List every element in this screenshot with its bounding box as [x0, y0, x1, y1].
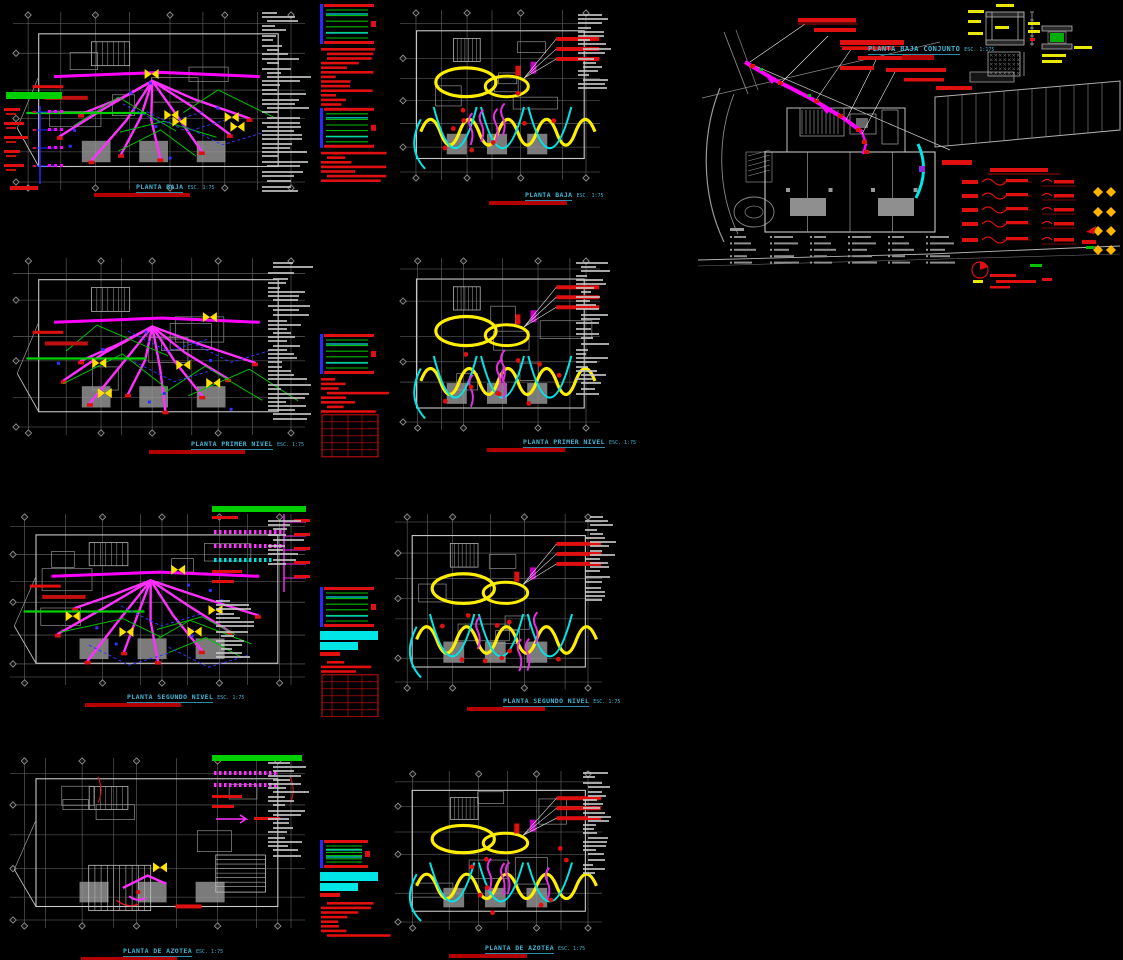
title-underline-bar	[487, 448, 565, 452]
note-text-line	[273, 791, 309, 793]
note-text-line	[576, 361, 597, 363]
annotation-stack-row3	[318, 585, 406, 721]
plan-title: PLANTA SEGUNDO NIVEL	[127, 693, 213, 703]
note-text-line	[267, 49, 279, 51]
plan-title: PLANTA DE AZOTEA	[123, 947, 192, 957]
note-text-line	[268, 324, 301, 326]
note-text-line	[273, 262, 293, 264]
note-text-line	[216, 608, 251, 610]
note-text-line	[268, 845, 288, 847]
note-text-line	[583, 832, 597, 834]
note-text-line	[267, 72, 281, 74]
note-text-line	[268, 545, 285, 547]
note-text-line	[578, 52, 605, 54]
note-text-line	[583, 807, 600, 809]
note-text-line	[578, 87, 607, 89]
note-text-line	[583, 849, 596, 851]
plan-scale: ESC. 1:75	[576, 193, 603, 199]
note-text-line	[583, 872, 595, 874]
note-text-line	[268, 370, 291, 372]
note-text-line	[576, 393, 599, 395]
note-text-line	[267, 62, 279, 64]
note-text-line	[576, 366, 588, 368]
note-text-line	[585, 591, 605, 593]
plan-title: PLANTA PRIMER NIVEL	[523, 438, 605, 448]
plan-scale: ESC. 1:75	[187, 185, 214, 191]
note-text-line	[576, 296, 600, 298]
plan-title: PLANTA SEGUNDO NIVEL	[503, 697, 589, 707]
note-text-line	[268, 353, 294, 355]
note-text-line	[581, 374, 606, 376]
note-text-line	[268, 800, 294, 802]
plan-title: PLANTA BAJA	[136, 183, 183, 193]
note-text-line	[216, 640, 244, 642]
plan-scale: ESC. 1:75	[558, 946, 585, 952]
note-text-line	[578, 18, 608, 20]
note-text-line	[576, 333, 599, 335]
title-underline-bar	[85, 703, 181, 707]
note-text-line	[590, 550, 602, 552]
note-text-line	[262, 25, 275, 27]
note-text-line	[583, 864, 593, 866]
note-text-line	[268, 349, 287, 351]
note-text-line	[585, 520, 608, 522]
plan-title-block: PLANTA DE AZOTEAESC. 1:75	[485, 937, 585, 958]
note-text-line	[262, 80, 300, 82]
note-text-line	[216, 604, 249, 606]
note-text-line	[578, 74, 589, 76]
note-text-line	[268, 837, 285, 839]
note-text-line	[576, 283, 606, 285]
note-text-line	[578, 22, 602, 24]
note-text-line	[268, 393, 309, 395]
note-text-line	[273, 559, 296, 561]
note-text-line	[216, 600, 230, 602]
note-text-line	[268, 563, 286, 565]
note-text-line	[273, 314, 309, 316]
note-text-line	[583, 812, 605, 814]
note-text-line	[268, 775, 301, 777]
plan-title: PLANTA DE AZOTEA	[485, 944, 554, 954]
floor-plan-azotea-right: PLANTA DE AZOTEAESC. 1:75	[390, 765, 612, 960]
note-text-line	[581, 314, 608, 316]
note-text-line	[268, 401, 286, 403]
note-text-line	[268, 384, 311, 386]
note-text-line	[262, 147, 290, 149]
note-text-line	[581, 337, 593, 339]
note-text-line	[262, 12, 277, 14]
plan-scale: ESC. 1:75	[593, 699, 620, 705]
note-text-line	[268, 762, 290, 764]
note-text-line	[588, 837, 608, 839]
note-text-line	[273, 770, 294, 772]
note-text-line	[581, 291, 591, 293]
note-text-line	[262, 134, 302, 136]
note-text-line	[262, 16, 295, 18]
note-text-line	[273, 332, 291, 334]
note-text-line	[590, 545, 609, 547]
note-text-line	[576, 328, 591, 330]
note-text-line	[576, 353, 586, 355]
note-text-line	[273, 418, 307, 420]
note-text-line	[273, 278, 288, 280]
note-text-line	[262, 143, 292, 145]
note-text-line	[268, 357, 297, 359]
note-text-line	[268, 534, 286, 536]
note-text-line	[268, 336, 295, 338]
note-text-line	[262, 89, 277, 91]
plan-title-block: PLANTA BAJAESC. 1:75	[525, 184, 604, 205]
note-text-line	[273, 539, 304, 541]
plan-title-block: PLANTA DE AZOTEAESC. 1:75	[123, 940, 223, 960]
plan-scale: ESC. 1:75	[217, 695, 244, 701]
note-text-line	[273, 855, 301, 857]
note-text-line	[268, 553, 298, 555]
note-text-line	[216, 613, 234, 615]
note-text-line	[583, 868, 605, 870]
note-text-line	[221, 644, 242, 646]
note-text-line	[268, 524, 290, 526]
title-underline-bar	[149, 450, 245, 454]
note-text-line	[590, 541, 616, 543]
title-underline-bar	[467, 707, 545, 711]
note-text-line	[262, 103, 295, 105]
note-text-line	[262, 39, 273, 41]
title-underline-bar	[489, 201, 567, 205]
plan-title-block: PLANTA SEGUNDO NIVELESC. 1:75	[503, 690, 620, 711]
note-text-line	[585, 558, 600, 560]
note-text-line	[267, 126, 301, 128]
note-text-line	[268, 520, 301, 522]
note-text-line	[273, 814, 301, 816]
note-text-line	[588, 853, 604, 855]
note-text-line	[267, 76, 311, 78]
note-text-line	[262, 122, 300, 124]
note-text-line	[268, 405, 306, 407]
plan-title: PLANTA PRIMER NIVEL	[191, 440, 273, 450]
note-text-line	[268, 366, 282, 368]
note-text-line	[588, 795, 606, 797]
notes-column	[262, 12, 310, 194]
note-text-line	[578, 39, 590, 41]
note-text-line	[585, 587, 601, 589]
note-text-line	[583, 66, 602, 68]
note-text-line	[262, 171, 303, 173]
note-text-line	[578, 14, 602, 16]
note-text-line	[583, 845, 606, 847]
note-text-line	[585, 537, 605, 539]
note-text-line	[267, 20, 298, 22]
note-text-line	[268, 295, 299, 297]
note-text-line	[262, 93, 306, 95]
note-text-line	[583, 841, 607, 843]
note-text-line	[262, 99, 299, 101]
note-text-line	[273, 299, 298, 301]
note-text-line	[262, 138, 302, 140]
note-text-line	[576, 349, 588, 351]
notes-column	[578, 14, 610, 91]
note-text-line	[268, 272, 294, 274]
site-title-block: PLANTA BAJA CONJUNTOESC. 1:175	[868, 38, 994, 60]
note-text-line	[578, 31, 604, 33]
note-text-line	[583, 799, 597, 801]
note-text-line	[273, 827, 293, 829]
note-text-line	[262, 45, 282, 47]
note-text-line	[267, 180, 291, 182]
note-text-line	[262, 155, 278, 157]
note-text-line	[576, 262, 608, 264]
site-scale: ESC. 1:175	[964, 47, 994, 53]
annotation-stack-row4	[318, 838, 400, 956]
note-text-line	[590, 516, 603, 518]
note-text-line	[578, 58, 594, 60]
note-text-line	[268, 374, 294, 376]
note-text-line	[576, 378, 593, 380]
note-text-line	[216, 625, 254, 627]
note-text-line	[267, 107, 309, 109]
note-text-line	[262, 35, 276, 37]
note-text-line	[273, 413, 311, 415]
note-text-line	[583, 79, 608, 81]
notes-column	[583, 772, 611, 876]
note-text-line	[578, 27, 591, 29]
note-text-line	[221, 648, 232, 650]
note-text-line	[576, 287, 594, 289]
note-text-line	[268, 361, 282, 363]
note-text-line	[583, 48, 611, 50]
note-text-line	[576, 304, 596, 306]
plan-scale: ESC. 1:75	[609, 440, 636, 446]
title-underline-bar	[94, 193, 190, 197]
notes-column	[268, 520, 304, 567]
note-text-line	[262, 186, 291, 188]
note-text-line	[576, 279, 603, 281]
notes-column	[268, 762, 308, 860]
note-text-line	[268, 328, 287, 330]
note-text-line	[583, 824, 596, 826]
note-text-line	[581, 388, 595, 390]
note-text-line	[583, 828, 594, 830]
plan-drawing	[390, 508, 612, 720]
note-text-line	[576, 322, 599, 324]
note-text-line	[588, 820, 609, 822]
plan-title-block: PLANTA PRIMER NIVELESC. 1:75	[523, 431, 636, 452]
note-text-line	[216, 617, 240, 619]
note-text-line	[268, 841, 302, 843]
note-text-line	[588, 816, 611, 818]
note-text-line	[262, 84, 280, 86]
note-text-line	[268, 378, 307, 380]
note-text-line	[576, 308, 599, 310]
note-text-line	[268, 305, 310, 307]
note-text-line	[578, 43, 606, 45]
note-text-line	[585, 570, 600, 572]
cad-sheet: PLANTA BAJAESC. 1:75 PLANTA BAJAESC. 1:7…	[0, 0, 1123, 960]
note-text-line	[583, 62, 596, 64]
note-text-line	[268, 291, 305, 293]
notes-column	[216, 600, 258, 660]
plan-drawing	[390, 765, 612, 960]
note-text-line	[267, 165, 300, 167]
note-text-line	[576, 357, 608, 359]
note-text-line	[590, 533, 603, 535]
note-text-line	[262, 58, 299, 60]
note-text-line	[581, 382, 601, 384]
note-text-line	[590, 524, 613, 526]
note-text-line	[216, 656, 250, 658]
note-text-line	[273, 849, 298, 851]
note-text-line	[581, 266, 596, 268]
annotation-stack-row2	[318, 332, 398, 470]
note-text-line	[578, 83, 605, 85]
annotation-stack-row1	[318, 2, 398, 218]
note-text-line	[585, 576, 610, 578]
note-text-line	[262, 151, 307, 153]
note-text-line	[268, 818, 289, 820]
note-text-line	[273, 528, 287, 530]
note-text-line	[268, 282, 286, 284]
note-text-line	[585, 599, 602, 601]
note-text-line	[268, 549, 283, 551]
site-plan-conjunto: PLANTA BAJA CONJUNTOESC. 1:175	[690, 2, 1123, 292]
note-text-line	[262, 53, 288, 55]
symbol-legend-riser	[4, 92, 68, 198]
note-text-line	[581, 270, 610, 272]
note-text-line	[588, 859, 605, 861]
note-text-line	[268, 831, 287, 833]
note-text-line	[583, 782, 602, 784]
note-text-line	[273, 266, 313, 268]
note-text-line	[583, 776, 595, 778]
note-text-line	[268, 409, 295, 411]
floor-plan-segundo-nivel-outlets: PLANTA SEGUNDO NIVELESC. 1:75	[390, 508, 612, 720]
note-text-line	[588, 786, 610, 788]
note-text-line	[273, 309, 299, 311]
notes-column	[585, 516, 613, 603]
note-text-line	[267, 117, 300, 119]
note-text-line	[216, 652, 242, 654]
note-text-line	[268, 783, 301, 785]
note-text-line	[273, 766, 306, 768]
notes-column	[268, 262, 314, 422]
note-text-line	[578, 70, 598, 72]
note-text-line	[581, 318, 600, 320]
note-text-line	[273, 804, 285, 806]
plan-scale: ESC. 1:75	[277, 442, 304, 448]
note-text-line	[268, 796, 285, 798]
notes-column	[576, 262, 610, 397]
note-text-line	[262, 130, 294, 132]
note-text-line	[268, 787, 286, 789]
title-underline-bar	[449, 954, 527, 958]
title-underline-bar	[902, 55, 934, 60]
note-text-line	[590, 566, 609, 568]
plan-title: PLANTA BAJA	[525, 191, 572, 201]
note-text-line	[576, 275, 587, 277]
plan-scale: ESC. 1:75	[196, 949, 223, 955]
note-text-line	[268, 388, 281, 390]
note-text-line	[583, 803, 603, 805]
note-text-line	[576, 370, 597, 372]
note-text-line	[590, 562, 608, 564]
note-text-line	[268, 397, 305, 399]
note-text-line	[590, 554, 615, 556]
note-text-line	[581, 343, 609, 345]
note-text-line	[262, 29, 286, 31]
plan-title-block: PLANTA SEGUNDO NIVELESC. 1:75	[127, 686, 244, 707]
note-text-line	[585, 529, 597, 531]
note-text-line	[268, 810, 305, 812]
note-text-line	[262, 111, 278, 113]
note-text-line	[273, 345, 300, 347]
note-text-line	[588, 791, 602, 793]
note-text-line	[268, 340, 287, 342]
plan-title-block: PLANTA BAJAESC. 1:75	[136, 176, 215, 197]
note-text-line	[262, 175, 294, 177]
note-text-line	[585, 595, 605, 597]
note-text-line	[578, 35, 604, 37]
note-text-line	[262, 190, 298, 192]
note-text-line	[576, 300, 590, 302]
note-text-line	[216, 631, 248, 633]
note-text-line	[583, 772, 608, 774]
note-text-line	[268, 320, 287, 322]
note-text-line	[262, 161, 308, 163]
note-text-line	[273, 779, 290, 781]
note-text-line	[216, 621, 254, 623]
note-text-line	[273, 822, 289, 824]
note-text-line	[268, 287, 280, 289]
plan-title-block: PLANTA PRIMER NIVELESC. 1:75	[191, 433, 304, 454]
site-title: PLANTA BAJA CONJUNTO	[868, 45, 960, 55]
note-text-line	[221, 635, 234, 637]
note-text-line	[262, 68, 291, 70]
note-text-line	[585, 581, 602, 583]
